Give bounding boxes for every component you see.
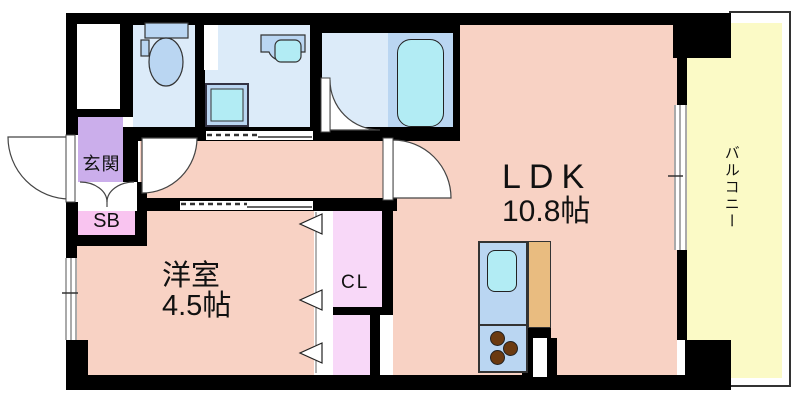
- closet-door-strip: [314, 212, 333, 373]
- pipe-space-washroom: [204, 25, 218, 70]
- kitchen-side-counter: [528, 241, 551, 328]
- wall-left-jut: [66, 340, 88, 390]
- ldk-name: LDK: [502, 160, 592, 196]
- wall-wash-bath: [310, 15, 322, 132]
- wall-sb-bottom: [66, 235, 147, 246]
- wall-bottom-right-jut: [685, 340, 731, 383]
- wall-closet-right-lower: [370, 315, 380, 375]
- closet-label: CL: [336, 272, 374, 294]
- western-room-name: 洋室: [162, 261, 231, 291]
- western-room-label: 洋室 4.5帖: [156, 259, 237, 324]
- wall-bottom: [88, 375, 731, 390]
- bathtub-icon: [397, 39, 444, 127]
- wall-entrance-right: [123, 127, 138, 182]
- wall-left-upper: [66, 246, 77, 258]
- western-room-size: 4.5帖: [162, 291, 231, 321]
- wall-bath-top: [322, 25, 453, 33]
- ldk-label: LDK 10.8帖: [494, 158, 600, 229]
- western-room-window: [64, 258, 77, 340]
- pipe-space-kitchen: [533, 338, 547, 377]
- closet-floor-lower: [333, 315, 370, 375]
- entrance-door-swing-icon: [8, 135, 75, 202]
- hallway-floor: [140, 140, 460, 200]
- wall-right-upper: [677, 23, 687, 105]
- wall-top: [66, 13, 731, 25]
- western-room-sliding-door: [180, 201, 313, 210]
- wall-kitchen-ps-right: [547, 338, 557, 378]
- wall-bath-right: [453, 25, 460, 140]
- wall-closet-right-upper: [382, 211, 393, 307]
- kitchen-counter-divider: [479, 324, 527, 326]
- meter-box-space: [77, 24, 120, 109]
- toilet-room-floor: [133, 23, 195, 127]
- wall-closet-step: [333, 307, 393, 315]
- stove-burner-icon: [490, 350, 505, 365]
- entrance-step-band: [78, 182, 137, 211]
- ldk-size: 10.8帖: [502, 196, 592, 228]
- ldk-floor-west: [393, 198, 460, 377]
- washroom-sliding-door: [206, 131, 313, 140]
- kitchen-sink: [487, 250, 517, 292]
- floor-plan: 玄関 SB 洋室 4.5帖 CL LDK 10.8帖 バルコニー: [0, 0, 800, 400]
- balcony-label: バルコニー: [722, 144, 740, 250]
- shoe-box-label: SB: [78, 211, 135, 232]
- wall-entry-top: [66, 117, 78, 135]
- wall-right-lower: [677, 250, 687, 340]
- stove-burner-icon: [503, 341, 518, 356]
- washroom-floor: [205, 25, 310, 133]
- entrance-label: 玄関: [80, 155, 123, 174]
- stove-burner-icon: [490, 331, 505, 346]
- balcony-window: [674, 105, 687, 250]
